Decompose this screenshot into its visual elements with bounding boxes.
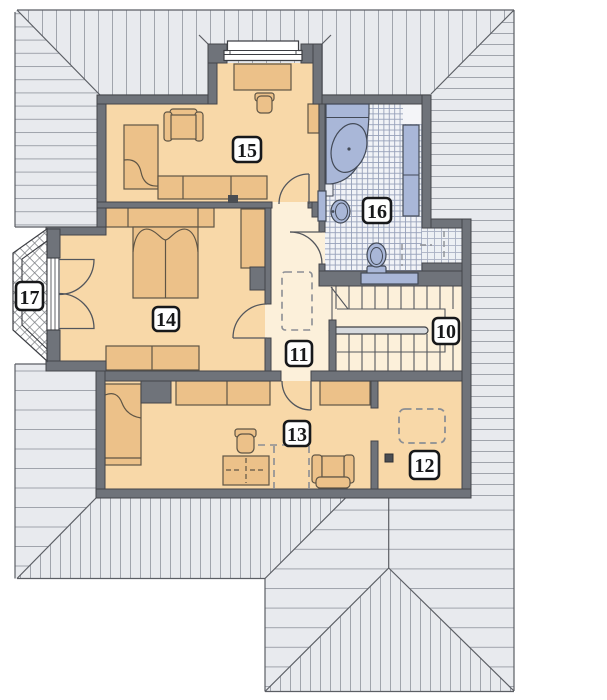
- svg-text:12: 12: [415, 455, 435, 477]
- svg-text:15: 15: [237, 140, 257, 162]
- svg-text:16: 16: [367, 201, 387, 223]
- svg-text:13: 13: [287, 424, 307, 446]
- svg-text:14: 14: [156, 309, 176, 331]
- svg-text:10: 10: [436, 321, 456, 343]
- svg-text:17: 17: [20, 287, 40, 309]
- svg-text:11: 11: [290, 344, 309, 366]
